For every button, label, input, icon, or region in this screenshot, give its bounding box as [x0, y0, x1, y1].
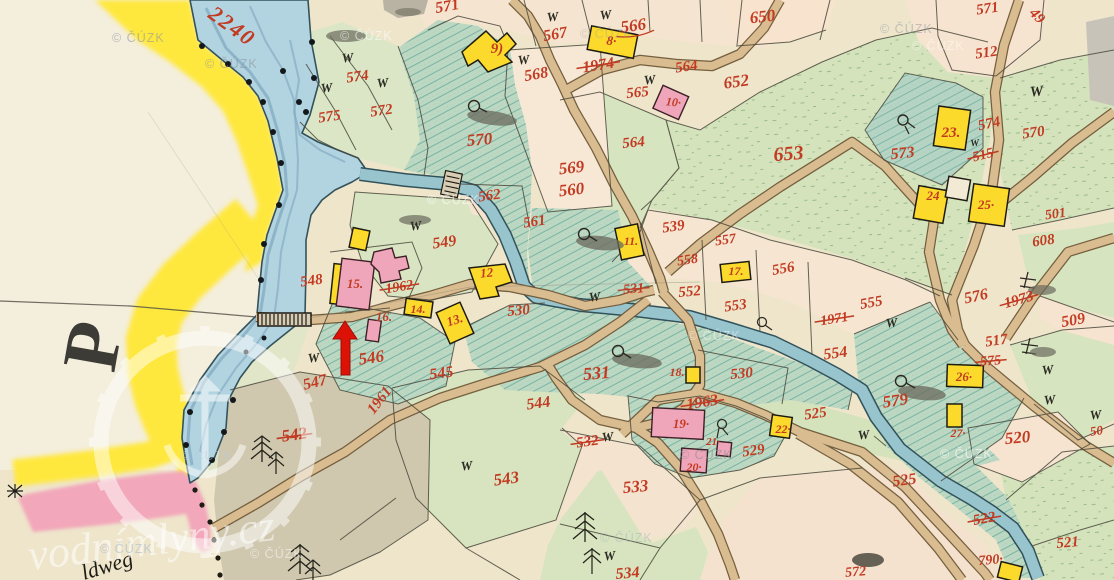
svg-text:17.: 17. [729, 264, 744, 278]
svg-text:525: 525 [891, 470, 917, 490]
svg-text:570: 570 [1021, 123, 1046, 142]
svg-text:548: 548 [299, 271, 324, 290]
svg-text:525: 525 [803, 404, 828, 423]
svg-text:21·: 21· [705, 436, 720, 448]
svg-text:564: 564 [622, 134, 647, 152]
svg-text:517: 517 [984, 331, 1009, 350]
svg-text:501: 501 [1044, 206, 1067, 224]
svg-text:© ČÚZK: © ČÚZK [180, 448, 233, 463]
svg-text:25·: 25· [977, 197, 994, 212]
svg-text:© ČÚZK: © ČÚZK [250, 546, 303, 561]
svg-text:521: 521 [1056, 534, 1080, 552]
svg-text:553: 553 [723, 296, 748, 315]
svg-text:653: 653 [773, 142, 805, 167]
svg-text:© ČÚZK: © ČÚZK [912, 38, 965, 53]
svg-text:© ČÚZK: © ČÚZK [205, 56, 258, 71]
svg-text:530: 530 [730, 365, 754, 383]
svg-text:554: 554 [822, 343, 848, 363]
svg-text:574: 574 [345, 67, 370, 86]
svg-text:14.: 14. [411, 302, 426, 316]
svg-text:520: 520 [1004, 427, 1032, 448]
svg-text:© ČÚZK: © ČÚZK [688, 328, 741, 343]
svg-text:9): 9) [491, 41, 504, 57]
svg-text:608: 608 [1031, 231, 1056, 250]
svg-text:533: 533 [622, 476, 650, 497]
svg-text:12: 12 [479, 264, 494, 280]
svg-text:546: 546 [357, 346, 385, 368]
svg-text:558: 558 [676, 252, 699, 270]
svg-text:19·: 19· [673, 416, 689, 431]
svg-text:© ČÚZK: © ČÚZK [940, 446, 993, 461]
svg-text:© ČÚZK: © ČÚZK [100, 541, 153, 556]
svg-text:23.: 23. [941, 125, 961, 141]
svg-text:545: 545 [428, 363, 454, 383]
svg-text:© ČÚZK: © ČÚZK [340, 28, 393, 43]
svg-text:© ČÚZK: © ČÚZK [600, 530, 653, 545]
svg-text:575: 575 [317, 107, 342, 126]
svg-text:565: 565 [626, 84, 651, 102]
svg-text:650: 650 [749, 6, 777, 28]
svg-text:15.: 15. [347, 276, 363, 291]
svg-text:557: 557 [714, 232, 738, 250]
svg-text:549: 549 [431, 232, 457, 252]
svg-text:572: 572 [845, 564, 867, 580]
svg-text:571: 571 [975, 0, 1000, 19]
svg-text:531: 531 [582, 362, 611, 384]
svg-text:© ČÚZK: © ČÚZK [580, 26, 633, 41]
svg-text:560: 560 [558, 179, 586, 201]
svg-text:16.: 16. [376, 309, 392, 324]
svg-text:© ČÚZK: © ČÚZK [880, 21, 933, 36]
svg-text:579: 579 [881, 389, 909, 411]
svg-text:50: 50 [1089, 422, 1104, 439]
svg-text:20·: 20· [686, 460, 702, 474]
svg-text:534: 534 [615, 564, 640, 580]
svg-text:26·: 26· [955, 369, 972, 384]
svg-text:561: 561 [522, 213, 547, 232]
svg-text:539: 539 [661, 217, 686, 236]
svg-text:10·: 10· [665, 94, 681, 109]
svg-text:544: 544 [525, 393, 551, 413]
svg-text:22·: 22· [775, 422, 791, 436]
svg-text:529: 529 [741, 441, 766, 460]
svg-text:790·: 790· [978, 552, 1004, 569]
svg-text:564: 564 [674, 57, 699, 76]
svg-text:512: 512 [974, 43, 999, 62]
svg-text:543: 543 [492, 467, 520, 489]
svg-text:652: 652 [722, 70, 750, 92]
svg-text:27·: 27· [950, 426, 966, 440]
svg-text:24: 24 [926, 188, 941, 203]
svg-text:© ČÚZK: © ČÚZK [680, 447, 733, 462]
svg-text:572: 572 [369, 101, 394, 120]
svg-text:562: 562 [477, 186, 502, 205]
svg-text:18.: 18. [670, 365, 685, 379]
svg-text:573: 573 [890, 144, 916, 163]
svg-text:552: 552 [678, 283, 702, 301]
svg-text:570: 570 [466, 129, 494, 150]
svg-text:© ČÚZK: © ČÚZK [427, 192, 480, 207]
svg-text:© ČÚZK: © ČÚZK [112, 30, 165, 45]
svg-text:569: 569 [558, 157, 586, 179]
svg-text:11.: 11. [624, 234, 638, 248]
svg-text:530: 530 [507, 302, 531, 320]
